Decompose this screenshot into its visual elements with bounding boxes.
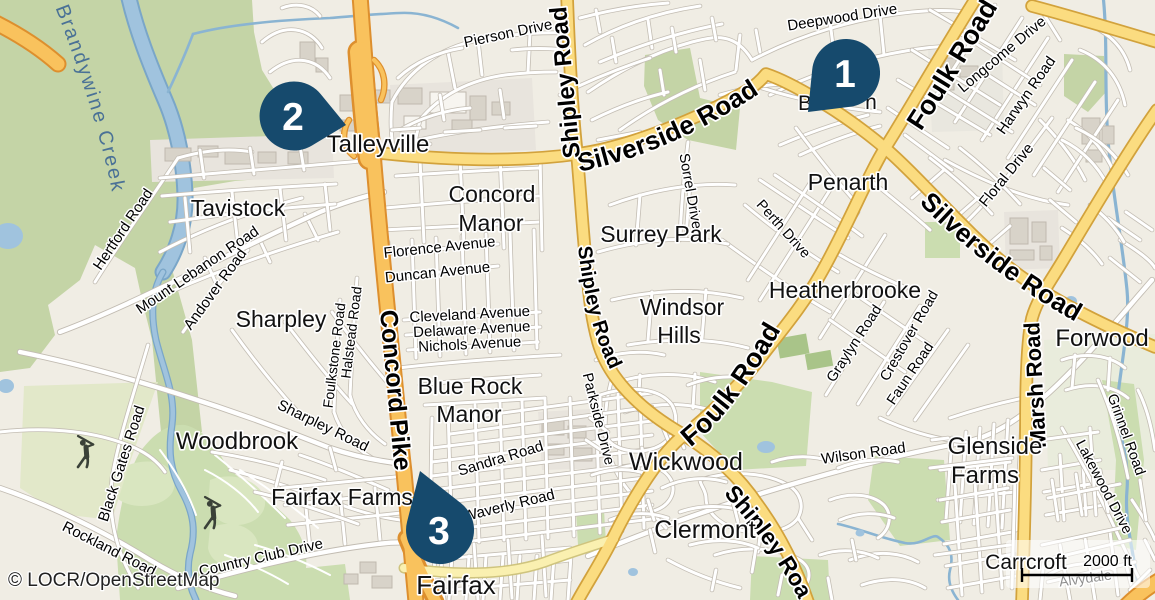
svg-text:Concord: Concord [449,181,536,207]
svg-text:Sharpley: Sharpley [236,306,327,332]
svg-text:Blue Rock: Blue Rock [418,373,523,399]
svg-text:Woodbrook: Woodbrook [176,428,299,455]
svg-text:Fairfax Farms: Fairfax Farms [271,484,413,510]
svg-text:Heatherbrooke: Heatherbrooke [769,277,921,303]
svg-text:Hills: Hills [657,322,700,348]
svg-text:2000 ft: 2000 ft [1083,553,1132,570]
svg-text:1: 1 [834,53,856,96]
svg-text:Glenside: Glenside [948,433,1043,460]
svg-text:Talleyville: Talleyville [327,131,430,158]
svg-text:Penarth: Penarth [808,169,889,195]
svg-text:Windsor: Windsor [640,294,725,320]
svg-text:© LOCR/OpenStreetMap: © LOCR/OpenStreetMap [8,570,219,591]
svg-text:Farms: Farms [951,462,1019,489]
svg-text:2: 2 [282,96,304,139]
svg-text:Wickwood: Wickwood [629,448,743,476]
svg-text:Clermont: Clermont [654,516,755,544]
svg-text:Carrcroft: Carrcroft [985,551,1067,574]
svg-text:Surrey Park: Surrey Park [600,221,722,247]
svg-text:Forwood: Forwood [1055,325,1148,352]
svg-text:Fairfax: Fairfax [416,570,495,600]
svg-text:Manor: Manor [436,401,502,427]
svg-text:3: 3 [428,510,450,553]
svg-text:Manor: Manor [458,210,524,236]
svg-text:Tavistock: Tavistock [191,195,286,221]
